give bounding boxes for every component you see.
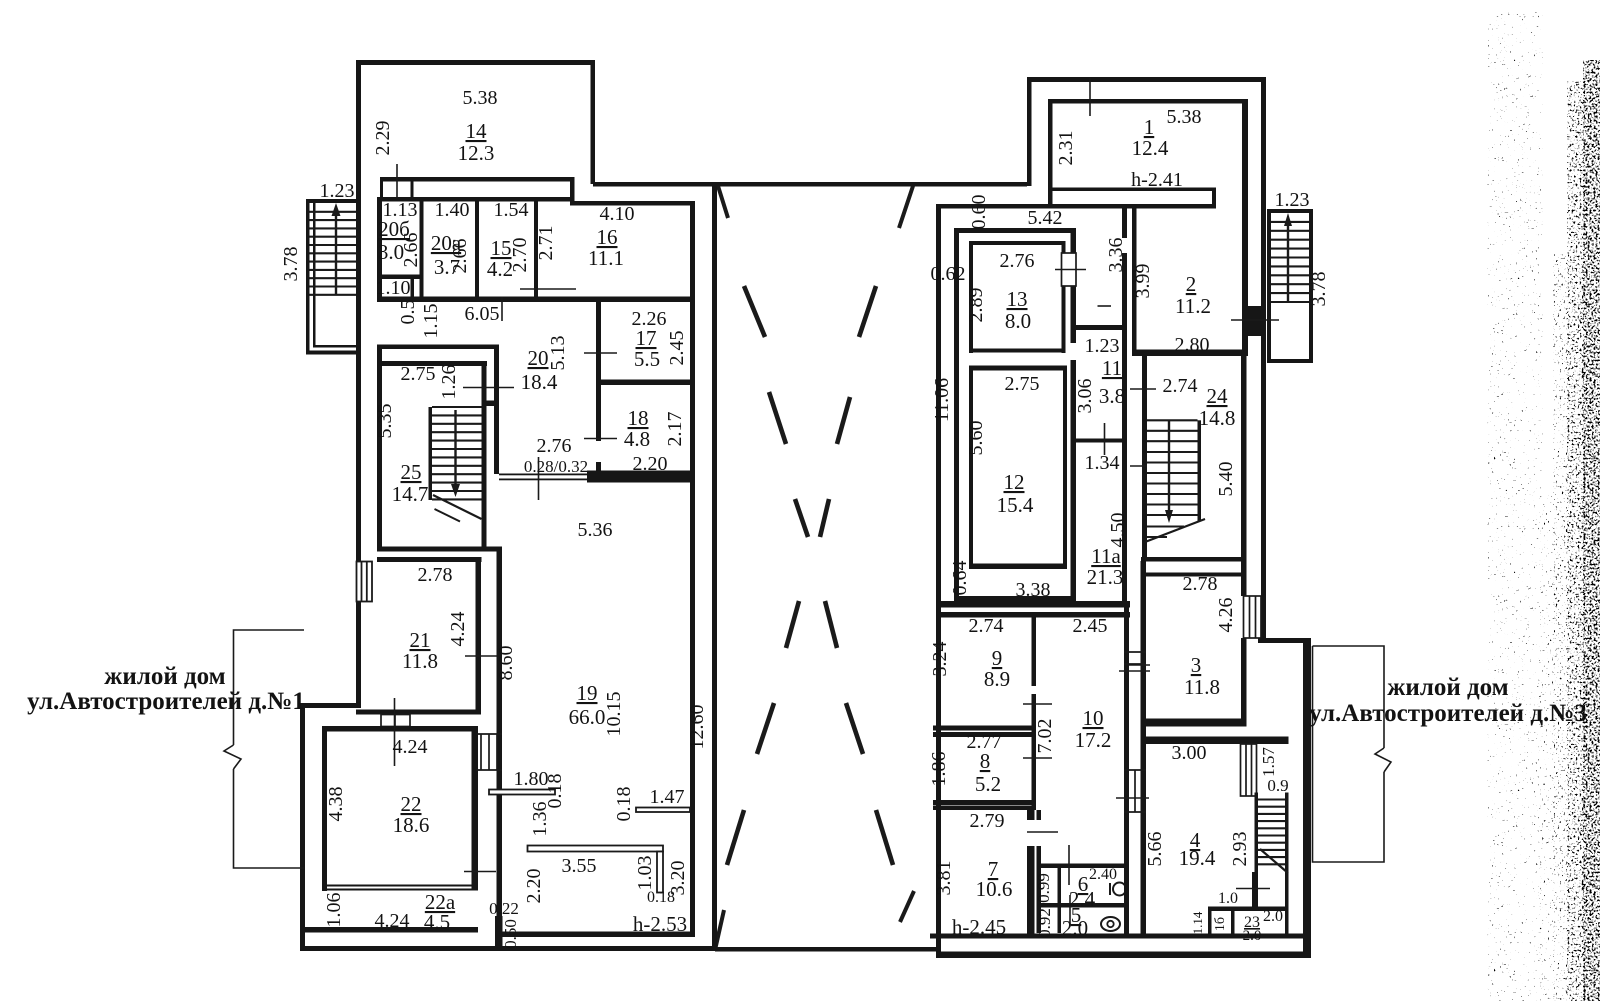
svg-text:11.1: 11.1 bbox=[588, 246, 624, 270]
svg-text:11.8: 11.8 bbox=[402, 649, 438, 673]
svg-text:12.60: 12.60 bbox=[686, 705, 708, 750]
svg-text:2.17: 2.17 bbox=[664, 412, 686, 447]
svg-text:5.60: 5.60 bbox=[965, 421, 987, 456]
svg-text:жилой дом: жилой дом bbox=[104, 663, 225, 690]
svg-text:1.0: 1.0 bbox=[1218, 890, 1238, 907]
svg-text:13: 13 bbox=[1007, 287, 1028, 311]
svg-text:3.00: 3.00 bbox=[1172, 742, 1207, 764]
svg-text:18.4: 18.4 bbox=[521, 370, 558, 394]
svg-text:1.14: 1.14 bbox=[1190, 911, 1205, 934]
svg-text:10.6: 10.6 bbox=[976, 877, 1013, 901]
svg-text:11.06: 11.06 bbox=[931, 378, 953, 422]
svg-text:5.36: 5.36 bbox=[578, 519, 613, 541]
svg-text:10: 10 bbox=[1083, 706, 1104, 730]
svg-text:5.13: 5.13 bbox=[547, 336, 569, 371]
svg-text:1.23: 1.23 bbox=[1085, 335, 1120, 357]
svg-text:2: 2 bbox=[1186, 272, 1197, 296]
svg-text:2.80: 2.80 bbox=[1175, 334, 1210, 356]
svg-text:3.55: 3.55 bbox=[562, 855, 597, 877]
svg-text:17.2: 17.2 bbox=[1075, 728, 1112, 752]
svg-text:4.50: 4.50 bbox=[1107, 513, 1129, 548]
svg-text:1.23: 1.23 bbox=[1275, 189, 1310, 211]
svg-text:0.62: 0.62 bbox=[931, 263, 966, 285]
svg-text:2.0: 2.0 bbox=[1062, 916, 1088, 940]
svg-text:2.76: 2.76 bbox=[1000, 250, 1035, 272]
svg-text:1.10: 1.10 bbox=[376, 277, 411, 299]
svg-text:h-2.53: h-2.53 bbox=[633, 912, 687, 936]
svg-text:1.47: 1.47 bbox=[650, 786, 685, 808]
svg-text:2.71: 2.71 bbox=[535, 226, 557, 261]
svg-text:4.38: 4.38 bbox=[325, 787, 347, 822]
svg-text:0.50: 0.50 bbox=[501, 919, 520, 949]
svg-text:15.4: 15.4 bbox=[997, 493, 1034, 517]
svg-text:14.8: 14.8 bbox=[1199, 406, 1236, 430]
svg-text:1.86: 1.86 bbox=[928, 752, 950, 787]
svg-text:3.8: 3.8 bbox=[1099, 384, 1125, 408]
svg-text:2.89: 2.89 bbox=[965, 288, 987, 323]
svg-text:3.78: 3.78 bbox=[1308, 272, 1330, 307]
svg-text:0.22: 0.22 bbox=[489, 899, 519, 918]
svg-text:5.66: 5.66 bbox=[1144, 832, 1166, 867]
svg-text:0.92: 0.92 bbox=[1035, 908, 1054, 938]
svg-text:5.5: 5.5 bbox=[634, 347, 660, 371]
svg-text:4.24: 4.24 bbox=[447, 612, 469, 647]
svg-text:2.31: 2.31 bbox=[1055, 131, 1077, 166]
svg-text:11.8: 11.8 bbox=[1184, 675, 1220, 699]
svg-text:11: 11 bbox=[1102, 356, 1122, 380]
svg-text:5.2: 5.2 bbox=[975, 772, 1001, 796]
svg-text:3.81: 3.81 bbox=[933, 861, 955, 896]
svg-text:5.40: 5.40 bbox=[1215, 462, 1237, 497]
svg-text:14.7: 14.7 bbox=[392, 482, 429, 506]
svg-text:14: 14 bbox=[466, 119, 488, 143]
svg-text:2.79: 2.79 bbox=[970, 810, 1005, 832]
svg-text:12.3: 12.3 bbox=[458, 141, 495, 165]
svg-text:1.54: 1.54 bbox=[494, 199, 529, 221]
svg-text:3.24: 3.24 bbox=[929, 642, 951, 677]
svg-text:0.18: 0.18 bbox=[613, 787, 635, 822]
svg-text:2.45: 2.45 bbox=[1073, 615, 1108, 637]
svg-text:0.9: 0.9 bbox=[1267, 776, 1288, 795]
svg-text:0.64: 0.64 bbox=[949, 561, 971, 596]
svg-text:4.8: 4.8 bbox=[624, 427, 650, 451]
svg-text:1.06: 1.06 bbox=[323, 893, 345, 928]
svg-text:8.0: 8.0 bbox=[1005, 309, 1031, 333]
svg-text:0.60: 0.60 bbox=[968, 195, 990, 230]
svg-text:2.0: 2.0 bbox=[1263, 908, 1283, 925]
svg-text:4.24: 4.24 bbox=[375, 910, 410, 932]
svg-text:0.28/0.32: 0.28/0.32 bbox=[524, 457, 588, 476]
svg-text:20: 20 bbox=[528, 346, 549, 370]
svg-text:1.03: 1.03 bbox=[634, 856, 656, 891]
svg-text:3.99: 3.99 bbox=[1132, 264, 1154, 299]
svg-text:2.0: 2.0 bbox=[1243, 928, 1262, 944]
svg-text:7.02: 7.02 bbox=[1034, 719, 1056, 754]
svg-text:2.45: 2.45 bbox=[666, 331, 688, 366]
svg-text:1.40: 1.40 bbox=[435, 199, 470, 221]
svg-text:0.99: 0.99 bbox=[1034, 873, 1053, 903]
svg-text:2.74: 2.74 bbox=[969, 615, 1004, 637]
svg-text:0.5: 0.5 bbox=[397, 300, 419, 325]
svg-text:2.74: 2.74 bbox=[1163, 375, 1198, 397]
svg-text:21.3: 21.3 bbox=[1087, 565, 1124, 589]
svg-text:3.06: 3.06 bbox=[1074, 379, 1096, 414]
svg-text:8.9: 8.9 bbox=[984, 667, 1010, 691]
svg-text:1б: 1б bbox=[1213, 917, 1228, 931]
svg-text:4.26: 4.26 bbox=[1215, 598, 1237, 633]
svg-text:1.26: 1.26 bbox=[438, 365, 460, 400]
svg-text:66.0: 66.0 bbox=[569, 705, 606, 729]
svg-text:18.6: 18.6 bbox=[393, 813, 430, 837]
svg-text:1.57: 1.57 bbox=[1259, 747, 1278, 777]
svg-text:2.29: 2.29 bbox=[372, 121, 394, 156]
svg-text:8.60: 8.60 bbox=[495, 646, 517, 681]
svg-text:12.4: 12.4 bbox=[1132, 136, 1169, 160]
svg-text:4.10: 4.10 bbox=[600, 203, 635, 225]
svg-text:19: 19 bbox=[577, 681, 598, 705]
svg-text:1.15: 1.15 bbox=[420, 304, 442, 339]
svg-text:3.38: 3.38 bbox=[1016, 579, 1051, 601]
svg-text:2.20: 2.20 bbox=[633, 453, 668, 475]
svg-text:5.38: 5.38 bbox=[463, 87, 498, 109]
svg-text:3.36: 3.36 bbox=[1105, 238, 1127, 273]
svg-text:5.42: 5.42 bbox=[1028, 207, 1063, 229]
svg-text:1.36: 1.36 bbox=[529, 802, 551, 837]
svg-text:3.78: 3.78 bbox=[280, 247, 302, 282]
svg-text:2.78: 2.78 bbox=[1183, 573, 1218, 595]
svg-text:10.15: 10.15 bbox=[603, 692, 625, 737]
svg-text:24: 24 bbox=[1207, 384, 1229, 408]
svg-text:h-2.41: h-2.41 bbox=[1131, 169, 1183, 191]
svg-text:11.2: 11.2 bbox=[1175, 294, 1211, 318]
svg-text:2.78: 2.78 bbox=[418, 564, 453, 586]
svg-text:2.75: 2.75 bbox=[1005, 373, 1040, 395]
svg-text:2.70: 2.70 bbox=[509, 238, 531, 273]
svg-text:2.40: 2.40 bbox=[1089, 866, 1117, 883]
svg-text:1.34: 1.34 bbox=[1085, 452, 1120, 474]
svg-text:1.23: 1.23 bbox=[320, 180, 355, 202]
svg-text:12: 12 bbox=[1004, 470, 1025, 494]
svg-text:2.76: 2.76 bbox=[537, 435, 572, 457]
svg-text:h-2.45: h-2.45 bbox=[952, 915, 1006, 939]
svg-text:2.66: 2.66 bbox=[400, 233, 422, 268]
svg-text:ул.Автостроителей д.№1: ул.Автостроителей д.№1 bbox=[27, 688, 305, 715]
svg-text:2.75: 2.75 bbox=[401, 363, 436, 385]
svg-text:2.93: 2.93 bbox=[1229, 832, 1251, 867]
svg-text:25: 25 bbox=[401, 460, 422, 484]
svg-text:8: 8 bbox=[980, 749, 991, 773]
svg-text:5.38: 5.38 bbox=[1167, 106, 1202, 128]
svg-text:3.20: 3.20 bbox=[667, 861, 689, 896]
svg-text:3: 3 bbox=[1191, 653, 1202, 677]
svg-text:5.35: 5.35 bbox=[374, 404, 396, 439]
svg-text:6.05: 6.05 bbox=[465, 303, 500, 325]
svg-text:19.4: 19.4 bbox=[1179, 846, 1216, 870]
svg-text:2.20: 2.20 bbox=[523, 869, 545, 904]
svg-text:4.24: 4.24 bbox=[393, 736, 428, 758]
svg-text:4.5: 4.5 bbox=[424, 910, 450, 934]
svg-text:2.66: 2.66 bbox=[449, 239, 471, 274]
